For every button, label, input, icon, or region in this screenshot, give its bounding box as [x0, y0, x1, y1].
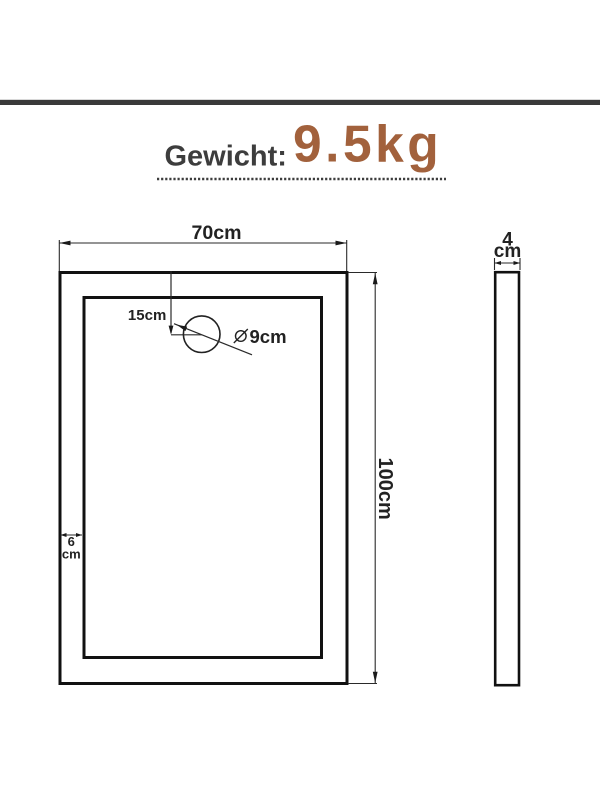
svg-text:9cm: 9cm [250, 326, 287, 347]
svg-text:70cm: 70cm [191, 222, 241, 244]
svg-text:15cm: 15cm [128, 307, 166, 324]
svg-text:100cm: 100cm [374, 458, 396, 520]
svg-text:cm: cm [62, 546, 81, 561]
svg-text:cm: cm [494, 241, 521, 262]
svg-text:Gewicht:: Gewicht: [165, 141, 287, 173]
svg-text:9.5kg: 9.5kg [293, 115, 442, 173]
